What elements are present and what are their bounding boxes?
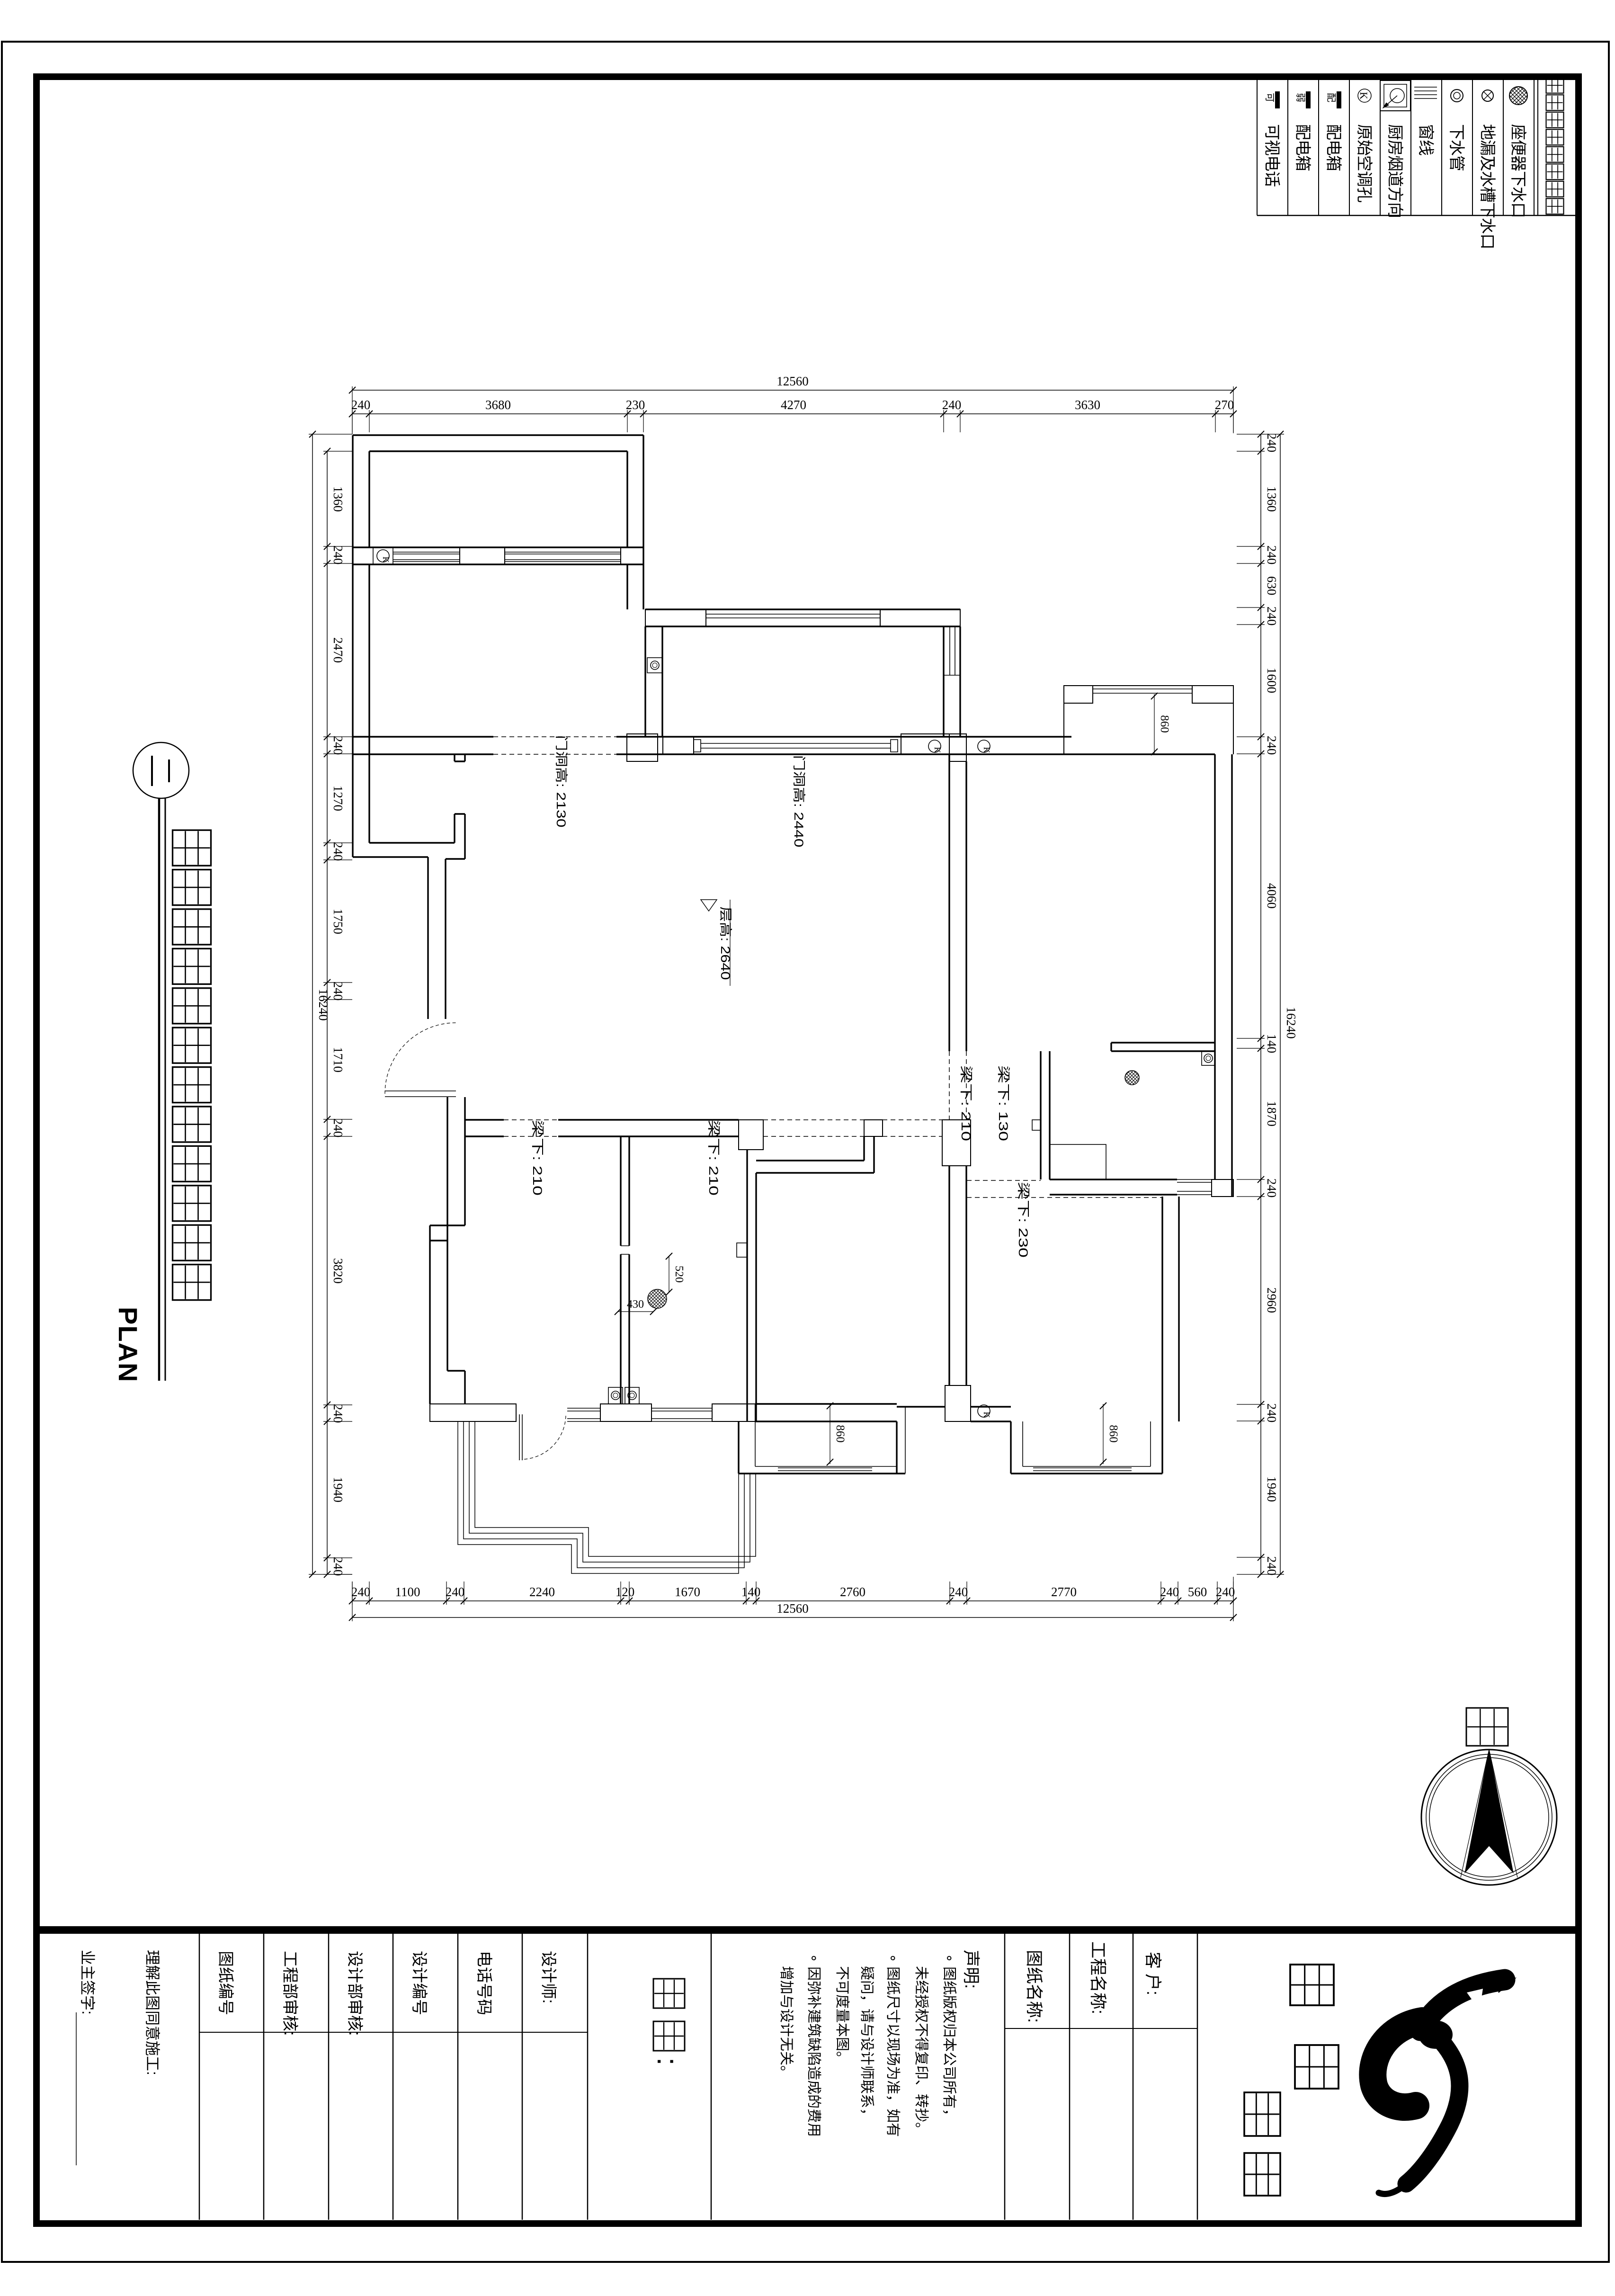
svg-text:240: 240 (1265, 1179, 1279, 1198)
svg-text:门洞高: 2130: 门洞高: 2130 (554, 735, 568, 828)
svg-text:240: 240 (351, 398, 371, 412)
svg-text:1710: 1710 (331, 1047, 345, 1072)
svg-text:K: K (982, 1412, 991, 1418)
svg-text:1750: 1750 (331, 909, 345, 934)
svg-text:240: 240 (331, 1118, 345, 1138)
svg-text:K: K (982, 747, 991, 753)
svg-text:240: 240 (331, 545, 345, 565)
svg-text:520: 520 (673, 1266, 685, 1283)
svg-text:240: 240 (1216, 1585, 1235, 1599)
svg-text:270: 270 (1215, 398, 1234, 412)
svg-text:240: 240 (331, 1404, 345, 1423)
svg-text:1940: 1940 (1265, 1476, 1279, 1502)
svg-text:梁下: 210: 梁下: 210 (959, 1065, 973, 1141)
svg-text:2240: 2240 (529, 1585, 555, 1599)
svg-text:240: 240 (1265, 1403, 1279, 1423)
svg-text:1100: 1100 (395, 1585, 420, 1599)
svg-text:2470: 2470 (331, 637, 345, 663)
svg-text:1360: 1360 (1265, 486, 1279, 512)
svg-text:12560: 12560 (776, 1601, 809, 1616)
svg-text:240: 240 (446, 1585, 465, 1599)
svg-text:1870: 1870 (1265, 1101, 1279, 1126)
svg-text:2760: 2760 (840, 1585, 865, 1599)
svg-text:K: K (933, 747, 942, 753)
svg-text:16240: 16240 (316, 989, 330, 1021)
svg-text:3680: 3680 (485, 398, 511, 412)
svg-text:240: 240 (331, 736, 345, 755)
svg-text:K: K (381, 557, 391, 563)
svg-text:1600: 1600 (1265, 668, 1279, 693)
svg-text:3630: 3630 (1075, 398, 1100, 412)
svg-text:2960: 2960 (1265, 1287, 1279, 1313)
svg-text:1360: 1360 (331, 486, 345, 512)
svg-text:4060: 4060 (1265, 883, 1279, 909)
svg-text:梁下: 230: 梁下: 230 (1016, 1182, 1030, 1258)
svg-text:630: 630 (1265, 576, 1279, 596)
svg-text:梁下: 130: 梁下: 130 (996, 1065, 1010, 1141)
svg-text:4270: 4270 (781, 398, 806, 412)
svg-text:240: 240 (331, 842, 345, 861)
svg-text:240: 240 (1265, 736, 1279, 755)
svg-text:860: 860 (1107, 1425, 1120, 1443)
svg-text:240: 240 (331, 982, 345, 1001)
svg-text:梁下: 210: 梁下: 210 (706, 1120, 721, 1196)
svg-text:860: 860 (1158, 715, 1171, 733)
svg-text:240: 240 (351, 1585, 371, 1599)
svg-text:240: 240 (1265, 607, 1279, 626)
svg-text:240: 240 (1265, 433, 1279, 453)
svg-text:1270: 1270 (331, 786, 345, 811)
svg-text:240: 240 (1160, 1585, 1179, 1599)
svg-text:240: 240 (1265, 1556, 1279, 1576)
svg-text:2770: 2770 (1051, 1585, 1077, 1599)
svg-text:240: 240 (331, 1557, 345, 1576)
svg-text:门洞高: 2440: 门洞高: 2440 (792, 755, 806, 848)
svg-text:240: 240 (942, 398, 962, 412)
svg-text:140: 140 (741, 1585, 761, 1599)
svg-text:3820: 3820 (331, 1258, 345, 1284)
svg-text:560: 560 (1188, 1585, 1207, 1599)
svg-text:1670: 1670 (675, 1585, 700, 1599)
svg-text:240: 240 (949, 1585, 968, 1599)
svg-text:860: 860 (834, 1425, 847, 1443)
svg-text:16240: 16240 (1284, 1007, 1298, 1039)
svg-text:1940: 1940 (331, 1477, 345, 1502)
svg-text:梁下: 210: 梁下: 210 (530, 1120, 544, 1196)
svg-text:230: 230 (626, 398, 645, 412)
svg-text:140: 140 (1265, 1034, 1279, 1054)
svg-text:120: 120 (616, 1585, 635, 1599)
svg-text:12560: 12560 (776, 374, 809, 388)
svg-text:240: 240 (1265, 545, 1279, 565)
